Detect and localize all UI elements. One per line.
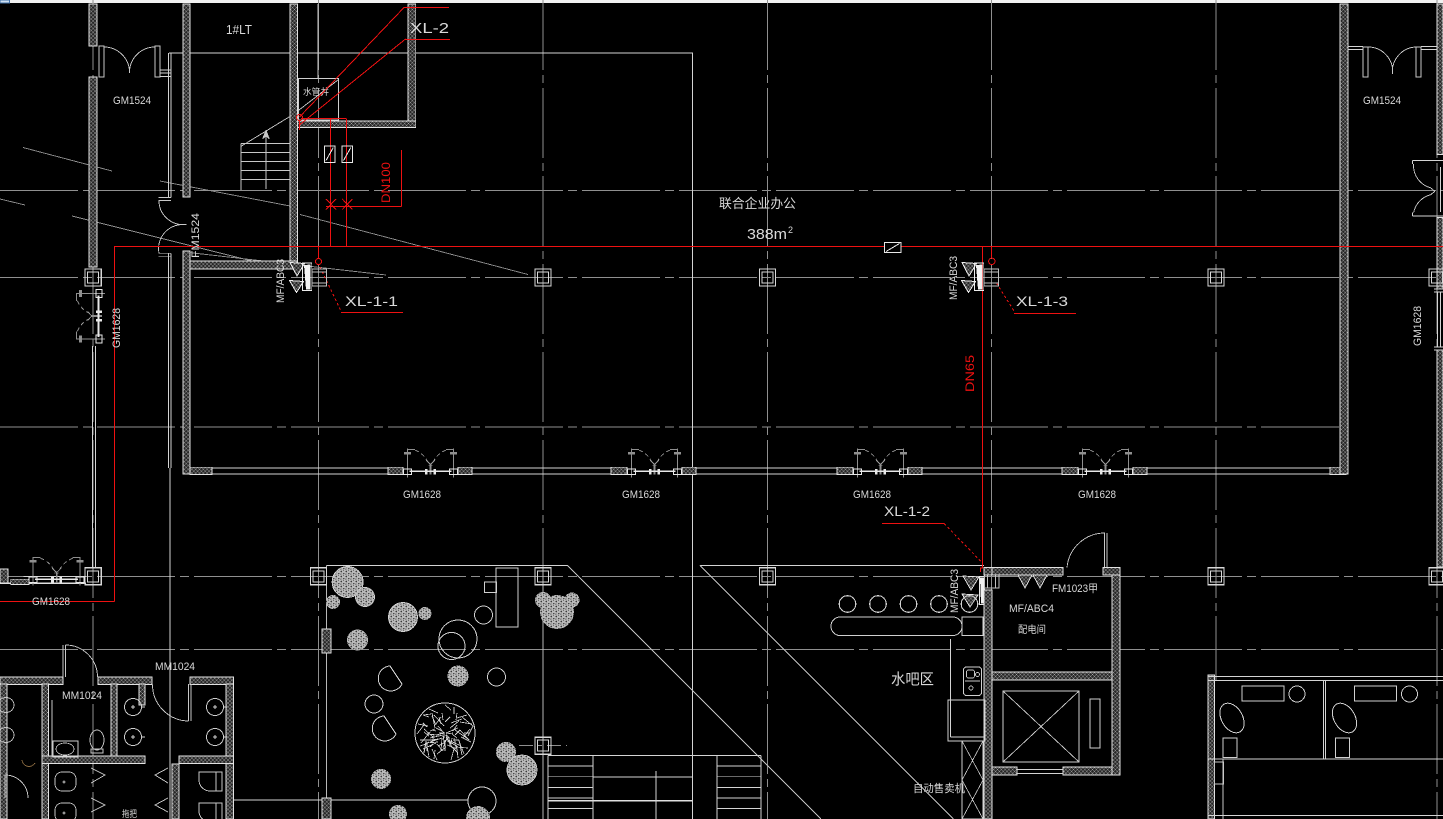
svg-text:拖把: 拖把 <box>122 808 137 819</box>
svg-text:XL-1-2: XL-1-2 <box>884 503 930 519</box>
svg-text:388m: 388m <box>747 226 787 243</box>
svg-text:自动售卖机: 自动售卖机 <box>913 781 965 795</box>
svg-text:GM1628: GM1628 <box>1078 489 1116 501</box>
svg-text:水管井: 水管井 <box>303 86 329 97</box>
svg-text:MF/ABC3: MF/ABC3 <box>275 259 287 303</box>
svg-text:XL-2: XL-2 <box>410 20 449 37</box>
svg-text:FM1524: FM1524 <box>190 213 202 258</box>
svg-text:GM1628: GM1628 <box>853 489 891 501</box>
svg-text:MM1024: MM1024 <box>62 690 102 702</box>
svg-text:MF/ABC3: MF/ABC3 <box>948 256 960 300</box>
svg-text:GM1524: GM1524 <box>113 95 151 107</box>
svg-text:GM1628: GM1628 <box>622 489 660 501</box>
svg-text:MM1024: MM1024 <box>155 661 195 673</box>
svg-text:XL-1-1: XL-1-1 <box>345 293 398 309</box>
svg-text:MF/ABC4: MF/ABC4 <box>1009 603 1054 615</box>
svg-text:FM1023甲: FM1023甲 <box>1052 583 1098 595</box>
svg-text:GM1524: GM1524 <box>1363 95 1401 107</box>
svg-text:DN100: DN100 <box>379 162 393 203</box>
svg-text:DN65: DN65 <box>963 355 977 392</box>
svg-text:GM1628: GM1628 <box>111 308 123 348</box>
svg-text:1#LT: 1#LT <box>226 22 252 37</box>
svg-text:XL-1-3: XL-1-3 <box>1016 293 1068 309</box>
svg-text:GM1628: GM1628 <box>1412 306 1424 346</box>
svg-text:配电间: 配电间 <box>1018 623 1046 636</box>
svg-text:GM1628: GM1628 <box>32 596 70 608</box>
svg-text:MF/ABC3: MF/ABC3 <box>949 569 961 613</box>
svg-text:2: 2 <box>788 225 793 235</box>
svg-text:水吧区: 水吧区 <box>891 671 934 688</box>
svg-text:联合企业办公: 联合企业办公 <box>719 196 796 211</box>
svg-text:GM1628: GM1628 <box>403 489 441 501</box>
